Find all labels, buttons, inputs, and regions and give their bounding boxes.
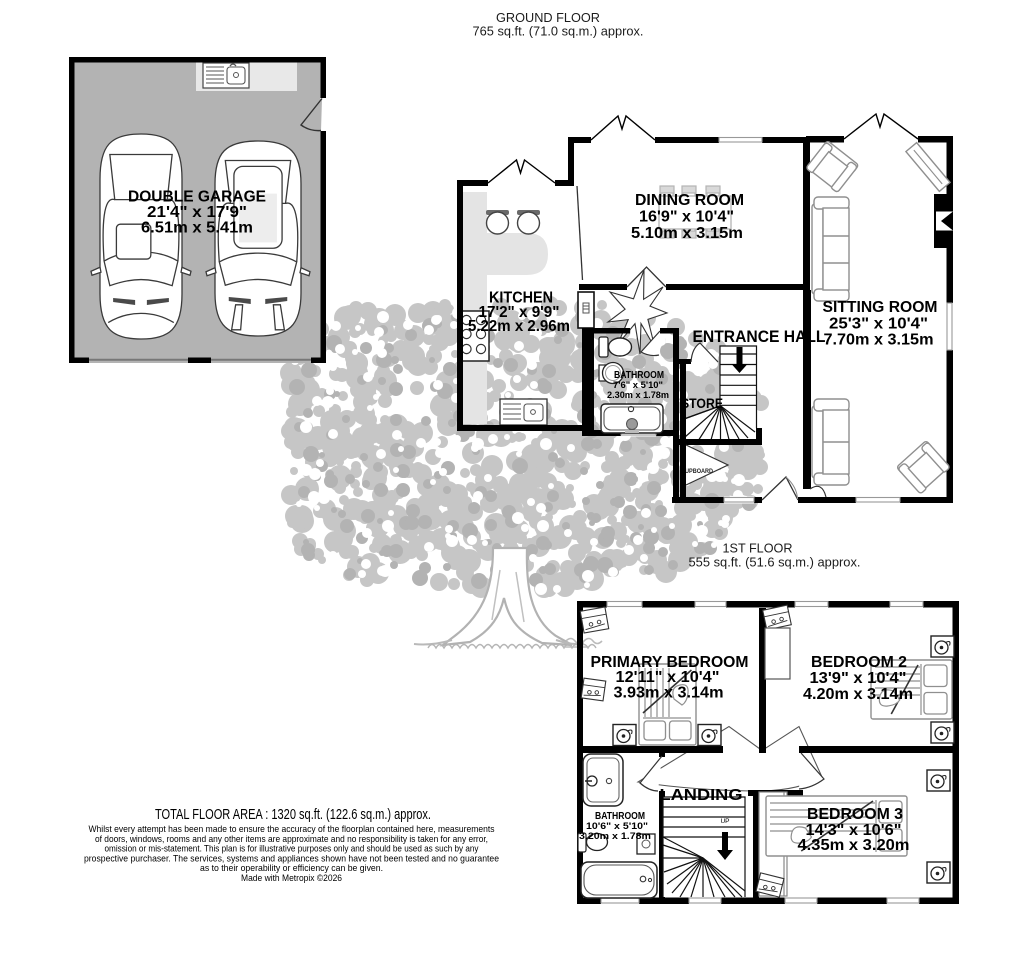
- svg-text:DINING ROOM: DINING ROOM: [635, 192, 744, 209]
- svg-text:4.20m x 3.14m: 4.20m x 3.14m: [803, 686, 913, 703]
- svg-text:TOTAL FLOOR AREA : 1320 sq.ft.: TOTAL FLOOR AREA : 1320 sq.ft. (122.6 sq…: [155, 807, 431, 823]
- svg-text:25'3" x 10'4": 25'3" x 10'4": [829, 316, 928, 333]
- svg-text:2.30m x 1.78m: 2.30m x 1.78m: [607, 390, 669, 400]
- svg-text:21'4" x 17'9": 21'4" x 17'9": [147, 204, 247, 221]
- svg-text:3.20m x 1.78m: 3.20m x 1.78m: [579, 831, 651, 841]
- svg-text:3.93m x 3.14m: 3.93m x 3.14m: [614, 685, 724, 702]
- svg-text:7'6" x 5'10": 7'6" x 5'10": [613, 380, 663, 390]
- svg-text:7.70m x 3.15m: 7.70m x 3.15m: [824, 332, 934, 349]
- svg-text:1ST FLOOR: 1ST FLOOR: [723, 542, 793, 556]
- svg-text:4.35m x 3.20m: 4.35m x 3.20m: [798, 837, 910, 854]
- svg-text:DOUBLE GARAGE: DOUBLE GARAGE: [128, 189, 266, 206]
- svg-text:BEDROOM 3: BEDROOM 3: [807, 806, 903, 823]
- svg-text:5.22m x 2.96m: 5.22m x 2.96m: [468, 318, 570, 335]
- svg-text:12'11" x 10'4": 12'11" x 10'4": [616, 669, 720, 686]
- svg-text:BEDROOM 2: BEDROOM 2: [811, 654, 907, 671]
- svg-text:SITTING ROOM: SITTING ROOM: [823, 299, 938, 316]
- svg-text:765 sq.ft. (71.0 sq.m.) approx: 765 sq.ft. (71.0 sq.m.) approx.: [473, 24, 644, 39]
- svg-text:6.51m x 5.41m: 6.51m x 5.41m: [141, 220, 253, 237]
- svg-text:5.10m x 3.15m: 5.10m x 3.15m: [631, 225, 743, 242]
- svg-text:10'6" x 5'10": 10'6" x 5'10": [586, 821, 648, 831]
- svg-text:13'9" x 10'4": 13'9" x 10'4": [810, 670, 907, 687]
- svg-text:LANDING: LANDING: [660, 787, 743, 804]
- svg-text:UP: UP: [720, 818, 729, 825]
- svg-text:16'9" x 10'4": 16'9" x 10'4": [639, 209, 734, 226]
- svg-text:Made with Metropix ©2026: Made with Metropix ©2026: [241, 873, 342, 884]
- svg-text:STORE: STORE: [681, 395, 723, 411]
- svg-text:ENTRANCE HALL: ENTRANCE HALL: [693, 327, 826, 346]
- svg-text:555 sq.ft. (51.6 sq.m.) approx: 555 sq.ft. (51.6 sq.m.) approx.: [689, 555, 861, 570]
